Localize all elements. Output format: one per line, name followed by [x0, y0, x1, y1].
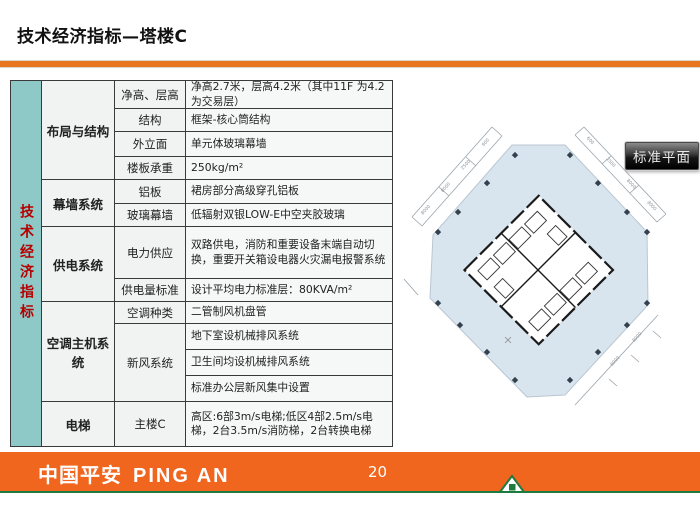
page-title: 技术经济指标—塔楼C [17, 22, 187, 47]
value-fresh-air-3: 标准办公层新风集中设置 [186, 376, 392, 401]
value-ac-type: 二管制风机盘管 [186, 302, 392, 323]
pingan-logo: 中国平安 PING AN [38, 459, 230, 488]
attr-aluminum-panel: 铝板 [115, 180, 185, 203]
svg-text:8000: 8000 [420, 204, 432, 217]
pingan-logo-chinese: 中国平安 [38, 459, 122, 488]
svg-text:600: 600 [481, 137, 491, 147]
group-label-hvac: 空调主机系统 [42, 302, 114, 401]
value-facade: 单元体玻璃幕墙 [186, 132, 392, 156]
attr-clear-height: 净高、层高 [115, 81, 185, 108]
attr-tower-c: 主楼C [115, 402, 185, 446]
footer-peak-icon [498, 473, 526, 493]
value-fresh-air-2: 卫生间均设机械排风系统 [186, 350, 392, 375]
page-number: 20 [368, 463, 387, 481]
value-power-standard: 设计平均电力标准层：80KVA/m² [186, 279, 392, 301]
floor-plan-diagram: 8000 8000 2500 600 600 2500 8000 8000 80… [398, 83, 700, 449]
attr-ac-type: 空调种类 [115, 302, 185, 323]
value-aluminum-panel: 裙房部分高级穿孔铝板 [186, 180, 392, 203]
svg-text:8000: 8000 [440, 181, 452, 194]
attr-power: 电力供应 [115, 227, 185, 278]
attr-floor-load: 楼板承重 [115, 157, 185, 179]
value-elevator: 高区:6部3m/s电梯;低区4部2.5m/s电梯，2台3.5m/s消防梯，2台转… [186, 402, 392, 446]
slide: 技术经济指标—塔楼C 技术经济指标 布局与结构 幕墙系统 供电系统 空调主机系统… [0, 0, 700, 525]
value-fresh-air-1: 地下室设机械排风系统 [186, 324, 392, 349]
table-side-label: 技术经济指标 [11, 81, 41, 446]
svg-text:2500: 2500 [604, 156, 616, 169]
title-divider-rule [0, 60, 700, 68]
group-label-power-supply: 供电系统 [42, 227, 114, 301]
svg-text:8000: 8000 [645, 200, 657, 213]
group-label-elevator: 电梯 [42, 402, 114, 446]
attr-glass-curtain: 玻璃幕墙 [115, 204, 185, 226]
value-floor-load: 250kg/m² [186, 157, 392, 179]
pingan-logo-english: PING AN [133, 465, 230, 488]
attr-power-standard: 供电量标准 [115, 279, 185, 301]
value-power: 双路供电，消防和重要设备末端自动切换，重要开关箱设电器火灾漏电报警系统 [186, 227, 392, 278]
value-structure: 框架-核心筒结构 [186, 109, 392, 131]
standard-plan-caption: 标准平面 [625, 142, 699, 170]
attr-structure: 结构 [115, 109, 185, 131]
footer-green-line [0, 491, 700, 493]
attr-facade: 外立面 [115, 132, 185, 156]
value-clear-height: 净高2.7米，层高4.2米（其中11F 为4.2为交易层） [186, 81, 392, 108]
attr-fresh-air: 新风系统 [115, 324, 185, 401]
value-glass-curtain: 低辐射双银LOW-E中空夹胶玻璃 [186, 204, 392, 226]
group-label-curtain-wall: 幕墙系统 [42, 180, 114, 226]
group-label-layout-structure: 布局与结构 [42, 81, 114, 179]
spec-table: 技术经济指标 布局与结构 幕墙系统 供电系统 空调主机系统 电梯 净高、层高 结… [10, 80, 393, 447]
